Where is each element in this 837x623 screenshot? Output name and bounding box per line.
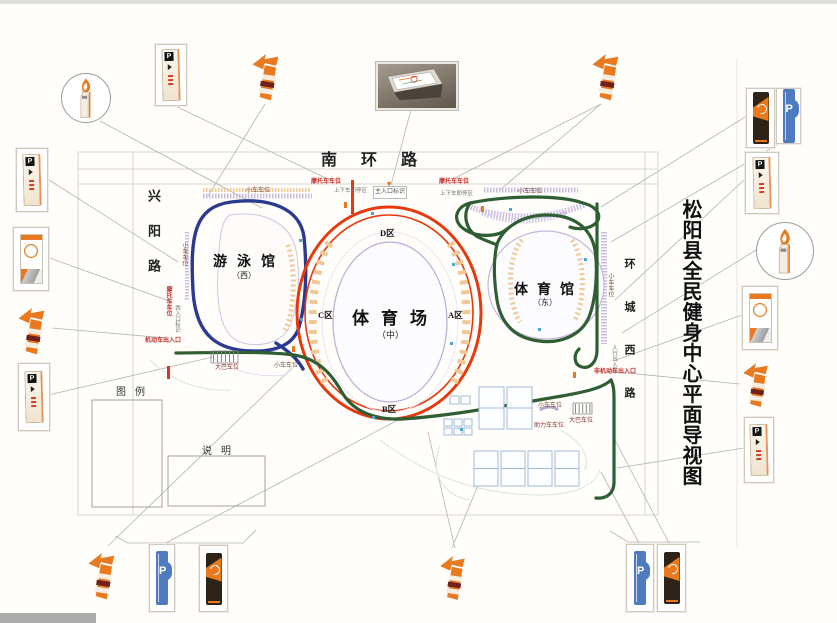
blue-parking-totem: P <box>783 89 795 143</box>
stadium-name: 体育场 <box>352 304 439 329</box>
brand-totem-sign <box>746 88 775 148</box>
arrow-glyph <box>168 64 172 70</box>
parking-totem: P <box>749 424 768 476</box>
parking-totem: P <box>22 154 41 206</box>
brand-totem <box>664 552 680 604</box>
info-board <box>20 234 43 284</box>
arrow-sign-icon <box>84 544 122 604</box>
parking-totem-sign: P <box>744 417 774 483</box>
direction-arrow-sign <box>739 355 775 416</box>
torch-totem-icon <box>767 226 803 276</box>
blue-parking-totem-sign: P <box>149 544 175 612</box>
stadium-block <box>297 180 481 419</box>
torch-totem-icon <box>70 76 102 120</box>
torch-totem-detail-circle <box>61 73 111 123</box>
gym-subtitle: （东） <box>533 297 557 308</box>
parking-totem: P <box>24 371 43 423</box>
info-board-base <box>21 269 42 283</box>
arrow-glyph <box>31 386 35 392</box>
map-thumbnail <box>24 244 38 258</box>
gym-name: 体育馆 <box>514 279 583 299</box>
brand-totem <box>753 92 769 144</box>
arrow-sign-icon <box>739 355 775 411</box>
map-thumbnail <box>753 303 767 317</box>
p-badge: P <box>164 52 173 61</box>
direction-arrow-sign <box>248 46 286 109</box>
parking-totem-sign: P <box>745 152 779 214</box>
red-text-rows <box>24 178 39 192</box>
page-title: 松阳县全民健身中心平面导视图 <box>676 199 705 486</box>
arrow-glyph <box>756 439 760 445</box>
info-board-header <box>21 235 42 240</box>
red-text-rows <box>163 73 178 87</box>
brand-totem-sign <box>657 544 686 612</box>
arrow-sign-icon <box>588 46 626 104</box>
car-parking-label: 小车车位 <box>246 185 270 194</box>
pool-subtitle: （西） <box>232 270 256 281</box>
west-entrance-sign-label: 西入口标识 <box>173 305 181 333</box>
red-text-rows <box>751 448 766 462</box>
info-board-header <box>750 294 771 299</box>
map-kiosk-icon <box>378 64 452 104</box>
dropoff-label: 上下车即停区 <box>334 186 367 194</box>
blue-parking-totem: P <box>156 551 168 605</box>
pool-block <box>192 201 306 369</box>
zone-d: D区 <box>380 227 395 239</box>
brand-totem <box>206 553 222 605</box>
red-text-rows <box>26 395 41 409</box>
p-badge: P <box>159 564 166 578</box>
bus-parking-label: 大巴车位 <box>215 362 239 371</box>
p-badge: P <box>752 427 761 436</box>
torch-totem-detail-circle <box>756 222 814 280</box>
road-label-north: 南环路 <box>321 146 441 170</box>
stadium-subtitle: （中） <box>377 328 404 341</box>
pedestrian-gate-label: 人行出入口 <box>610 345 618 373</box>
red-text-rows <box>754 181 769 195</box>
zone-a: A区 <box>448 309 463 321</box>
blue-parking-totem: P <box>634 551 646 605</box>
p-badge: P <box>25 157 34 166</box>
parking-totem-sign: P <box>155 44 187 106</box>
arrow-glyph <box>759 172 763 178</box>
parking-totem: P <box>161 49 180 101</box>
bus-parking-label: 大巴车位 <box>569 415 593 424</box>
dropoff-label: 上下车即停区 <box>440 189 473 197</box>
info-board <box>749 293 772 343</box>
p-badge: P <box>786 102 793 116</box>
moto-parking-label: 摩托车车位 <box>439 176 469 185</box>
moto-parking-label: 摩托车车位 <box>311 176 341 185</box>
car-parking-label: 小车车位 <box>274 360 298 369</box>
car-parking-label: 小车车位 <box>518 186 542 195</box>
p-badge: P <box>755 160 764 169</box>
direction-arrow-sign <box>588 46 626 109</box>
arrow-sign-icon <box>14 300 52 358</box>
blue-parking-totem-sign: P <box>626 544 654 612</box>
map-kiosk-sign <box>376 62 458 110</box>
arrow-sign-icon <box>436 546 472 606</box>
arrow-sign-icon <box>248 46 286 104</box>
zone-c: C区 <box>318 309 333 321</box>
info-board-base <box>750 328 771 342</box>
car-parking-label: 小车车位 <box>538 400 562 409</box>
vehicle-gate-label: 机动车出入口 <box>145 335 181 344</box>
p-badge: P <box>27 374 36 383</box>
moped-parking-label: 助力车车位 <box>534 420 564 429</box>
moto-parking-label: 摩托车车位 <box>164 286 173 316</box>
road-label-west: 兴阳路 <box>144 189 163 294</box>
road-label-east: 环城西路 <box>621 258 637 430</box>
zone-b: B区 <box>382 403 396 415</box>
parking-totem-sign: P <box>18 363 50 431</box>
parking-totem: P <box>752 157 771 209</box>
direction-arrow-sign <box>84 544 122 609</box>
brand-totem-sign <box>199 545 228 612</box>
p-badge: P <box>637 564 644 578</box>
car-parking-label: 小车车位 <box>606 273 615 297</box>
main-entrance-sign-label: 主入口标识 <box>373 186 407 199</box>
blue-parking-totem-sign: P <box>776 88 801 144</box>
info-board-sign <box>742 286 778 350</box>
parking-totem-sign: P <box>16 148 48 212</box>
direction-arrow-sign <box>14 300 52 363</box>
direction-arrow-sign <box>436 546 472 611</box>
plan-guide-map: 松阳县全民健身中心平面导视图 南环路 兴阳路 环城西路 游泳馆 （西） 体育场 … <box>0 0 837 623</box>
note-title: 说明 <box>202 442 240 457</box>
legend-title: 图例 <box>116 383 154 398</box>
info-board-sign <box>13 227 49 291</box>
car-parking-label: 小车车位 <box>180 242 189 266</box>
arrow-glyph <box>29 169 33 175</box>
pool-name: 游泳馆 <box>213 251 285 271</box>
